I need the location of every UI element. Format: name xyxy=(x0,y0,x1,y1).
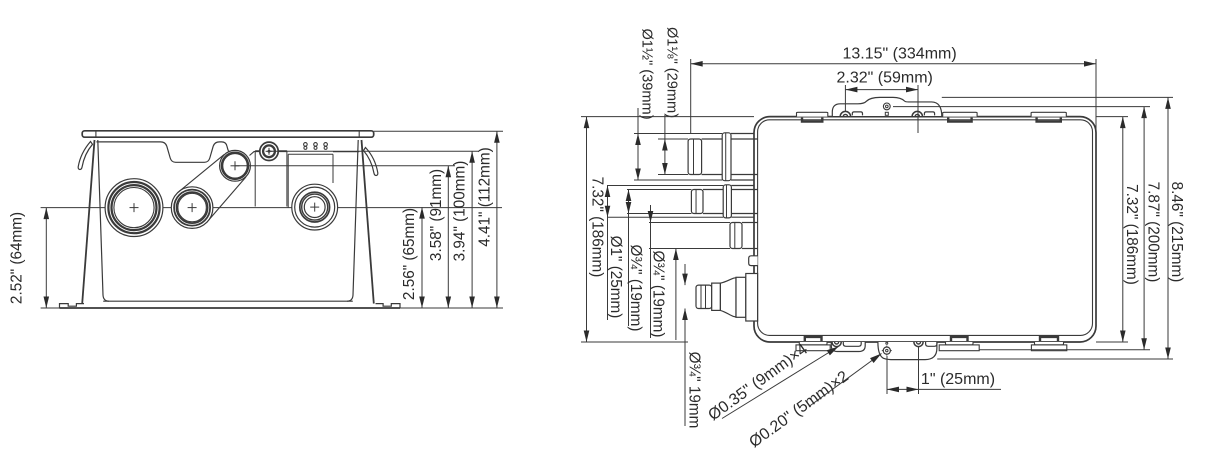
svg-text:7.32" (186mm): 7.32" (186mm) xyxy=(589,177,606,278)
svg-text:Ø¾" (19mm): Ø¾" (19mm) xyxy=(650,250,667,337)
svg-text:Ø1⅛" (29mm): Ø1⅛" (29mm) xyxy=(664,27,680,118)
svg-text:7.32" (186mm): 7.32" (186mm) xyxy=(1123,184,1140,285)
svg-text:Ø1½" (39mm): Ø1½" (39mm) xyxy=(639,28,655,119)
svg-text:4.41" (112mm): 4.41" (112mm) xyxy=(476,147,493,247)
svg-text:8.46" (215mm): 8.46" (215mm) xyxy=(1168,182,1185,283)
svg-text:3.94" (100mm): 3.94" (100mm) xyxy=(452,161,469,262)
svg-text:1" (25mm): 1" (25mm) xyxy=(921,371,995,388)
svg-text:2.52" (64mm): 2.52" (64mm) xyxy=(9,212,26,304)
svg-text:Ø¾" 19mm: Ø¾" 19mm xyxy=(686,352,703,429)
svg-text:Ø1" (25mm): Ø1" (25mm) xyxy=(607,236,624,319)
svg-text:3.58" (91mm): 3.58" (91mm) xyxy=(428,169,445,261)
svg-text:13.15" (334mm): 13.15" (334mm) xyxy=(843,46,957,63)
svg-text:2.56" (65mm): 2.56" (65mm) xyxy=(401,208,418,300)
svg-text:Ø¾" (19mm): Ø¾" (19mm) xyxy=(627,244,644,331)
svg-text:7.87" (200mm): 7.87" (200mm) xyxy=(1145,182,1162,283)
svg-text:2.32" (59mm): 2.32" (59mm) xyxy=(837,70,933,87)
